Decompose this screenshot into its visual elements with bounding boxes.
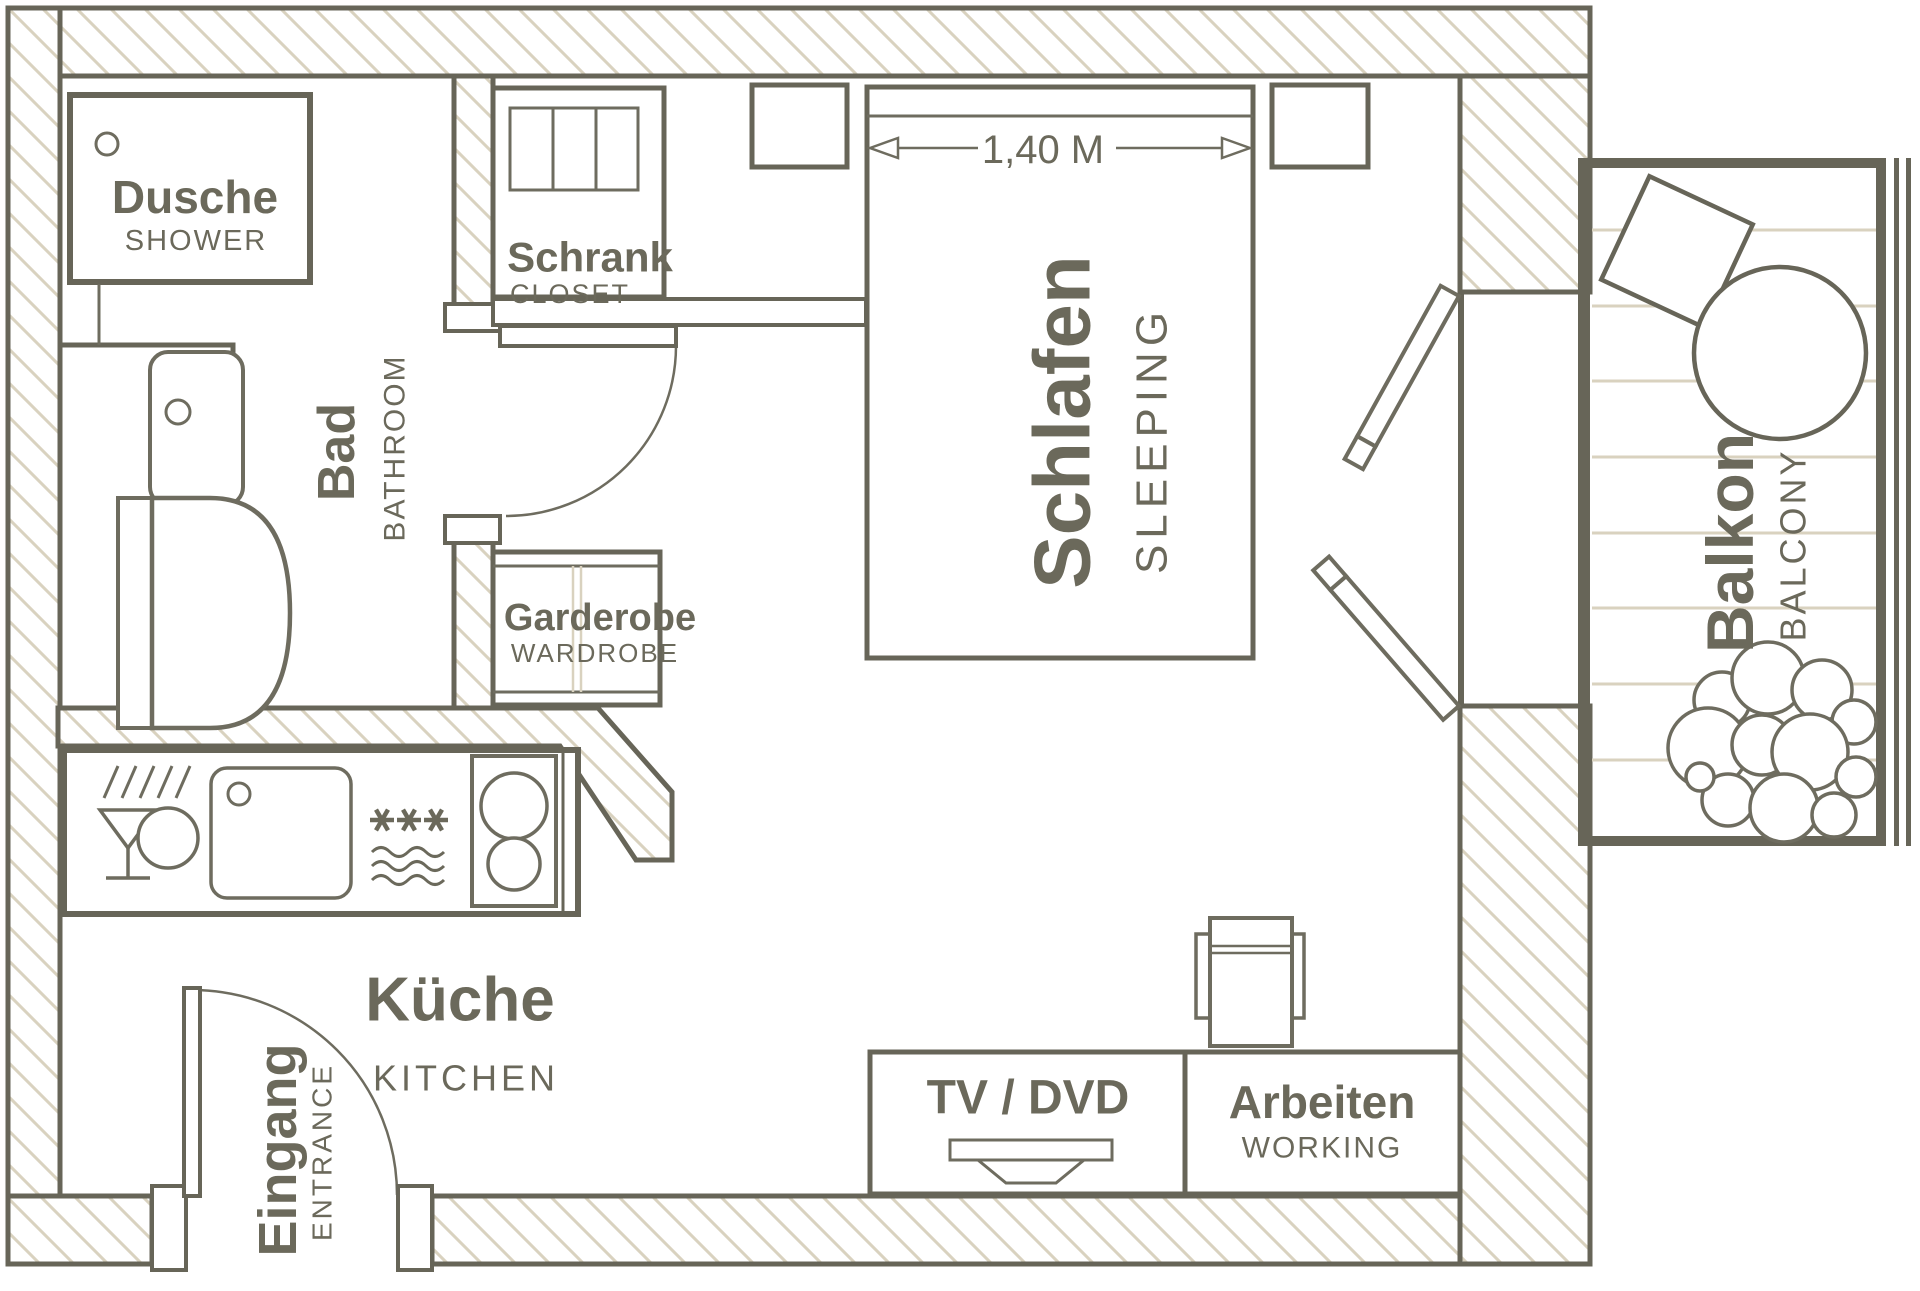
wardrobe-sublabel: WARDROBE	[511, 638, 679, 668]
wall-pillar-right	[1460, 76, 1590, 292]
shower-label: Dusche	[112, 171, 278, 223]
burner-small	[488, 838, 540, 890]
balcony-plant	[1668, 642, 1876, 842]
balcony-table	[1694, 267, 1866, 439]
nightstand-left	[752, 85, 847, 167]
wardrobe-label: Garderobe	[504, 597, 696, 639]
bathroom-sink	[150, 352, 243, 505]
door-jamb	[398, 1186, 432, 1270]
desk-chair	[1196, 918, 1304, 1046]
balcony-door	[1313, 286, 1464, 720]
kitchen-sublabel: KITCHEN	[373, 1058, 559, 1099]
room-bathroom: Bad BATHROOM	[58, 284, 412, 728]
entrance-label: Eingang	[248, 1044, 308, 1257]
door-jamb	[445, 516, 500, 543]
room-kitchen: Küche KITCHEN	[64, 750, 578, 1099]
balcony-railing	[1894, 158, 1899, 846]
sleeping-sublabel: SLEEPING	[1128, 306, 1177, 574]
chair-seat	[1210, 918, 1292, 1046]
balcony-door-leaf-top	[1357, 286, 1459, 447]
wall-bottom	[432, 1196, 1590, 1264]
entrance-sublabel: ENTRANCE	[307, 1063, 338, 1241]
burner-large	[481, 773, 547, 839]
work-label: Arbeiten	[1229, 1076, 1416, 1128]
work-area: Arbeiten WORKING	[1185, 918, 1460, 1194]
kitchen-faucet-icon	[228, 783, 250, 805]
shower-head-icon	[96, 133, 118, 155]
sink-faucet-icon	[166, 400, 190, 424]
closet-label: Schrank	[507, 234, 673, 281]
balcony-wall-right	[1876, 158, 1886, 846]
balcony-door-leaf-bottom	[1330, 576, 1459, 720]
door-leaf	[500, 326, 676, 346]
cooktop	[472, 756, 556, 906]
toilet-bowl	[152, 498, 290, 728]
balcony-sublabel: BALCONY	[1773, 448, 1814, 641]
balcony-railing	[1906, 158, 1911, 846]
door-swing-arc	[506, 346, 676, 516]
balcony-door-threshold	[1458, 292, 1464, 706]
balcony-label: Balkon	[1693, 433, 1767, 653]
nightstand-right	[1272, 85, 1368, 167]
room-sleeping: 1,40 M Schlafen SLEEPING	[752, 85, 1368, 658]
room-shower: Dusche SHOWER	[70, 95, 310, 282]
wall-right-lower	[1460, 706, 1590, 1264]
media-unit: TV / DVD	[870, 1052, 1185, 1194]
bed-width-value: 1,40 M	[982, 128, 1104, 172]
wall-left	[8, 8, 60, 1264]
wall-hall-upper	[454, 76, 493, 320]
door-jamb	[152, 1186, 186, 1270]
wall-top	[8, 8, 1590, 76]
work-sublabel: WORKING	[1242, 1132, 1403, 1165]
balcony-wall-top	[1578, 158, 1886, 168]
kitchen-label: Küche	[365, 966, 554, 1035]
floor-plan-page: Dusche SHOWER Bad BATHROOM Schrank CLOSE…	[0, 0, 1920, 1291]
wall-hall-lower	[454, 540, 493, 710]
chair-armrest	[1196, 934, 1210, 1018]
bathroom-label: Bad	[308, 403, 366, 501]
plate-icon	[138, 808, 198, 868]
floor-plan: Dusche SHOWER Bad BATHROOM Schrank CLOSE…	[0, 0, 1920, 1291]
room-wardrobe: Garderobe WARDROBE	[493, 552, 696, 705]
bathroom-sublabel: BATHROOM	[379, 354, 412, 541]
toilet-tank	[118, 498, 152, 728]
closet-sublabel: CLOSET	[510, 279, 630, 309]
closet-compartments	[510, 108, 638, 190]
door-leaf	[184, 988, 200, 1196]
hall-door	[445, 304, 676, 543]
room-balcony: Balkon BALCONY	[1578, 158, 1911, 846]
sleeping-label: Schlafen	[1018, 255, 1107, 588]
balcony-wall-left	[1578, 158, 1590, 846]
wall-bottom-left	[8, 1196, 152, 1264]
media-label: TV / DVD	[927, 1072, 1130, 1125]
shower-sublabel: SHOWER	[125, 225, 268, 257]
